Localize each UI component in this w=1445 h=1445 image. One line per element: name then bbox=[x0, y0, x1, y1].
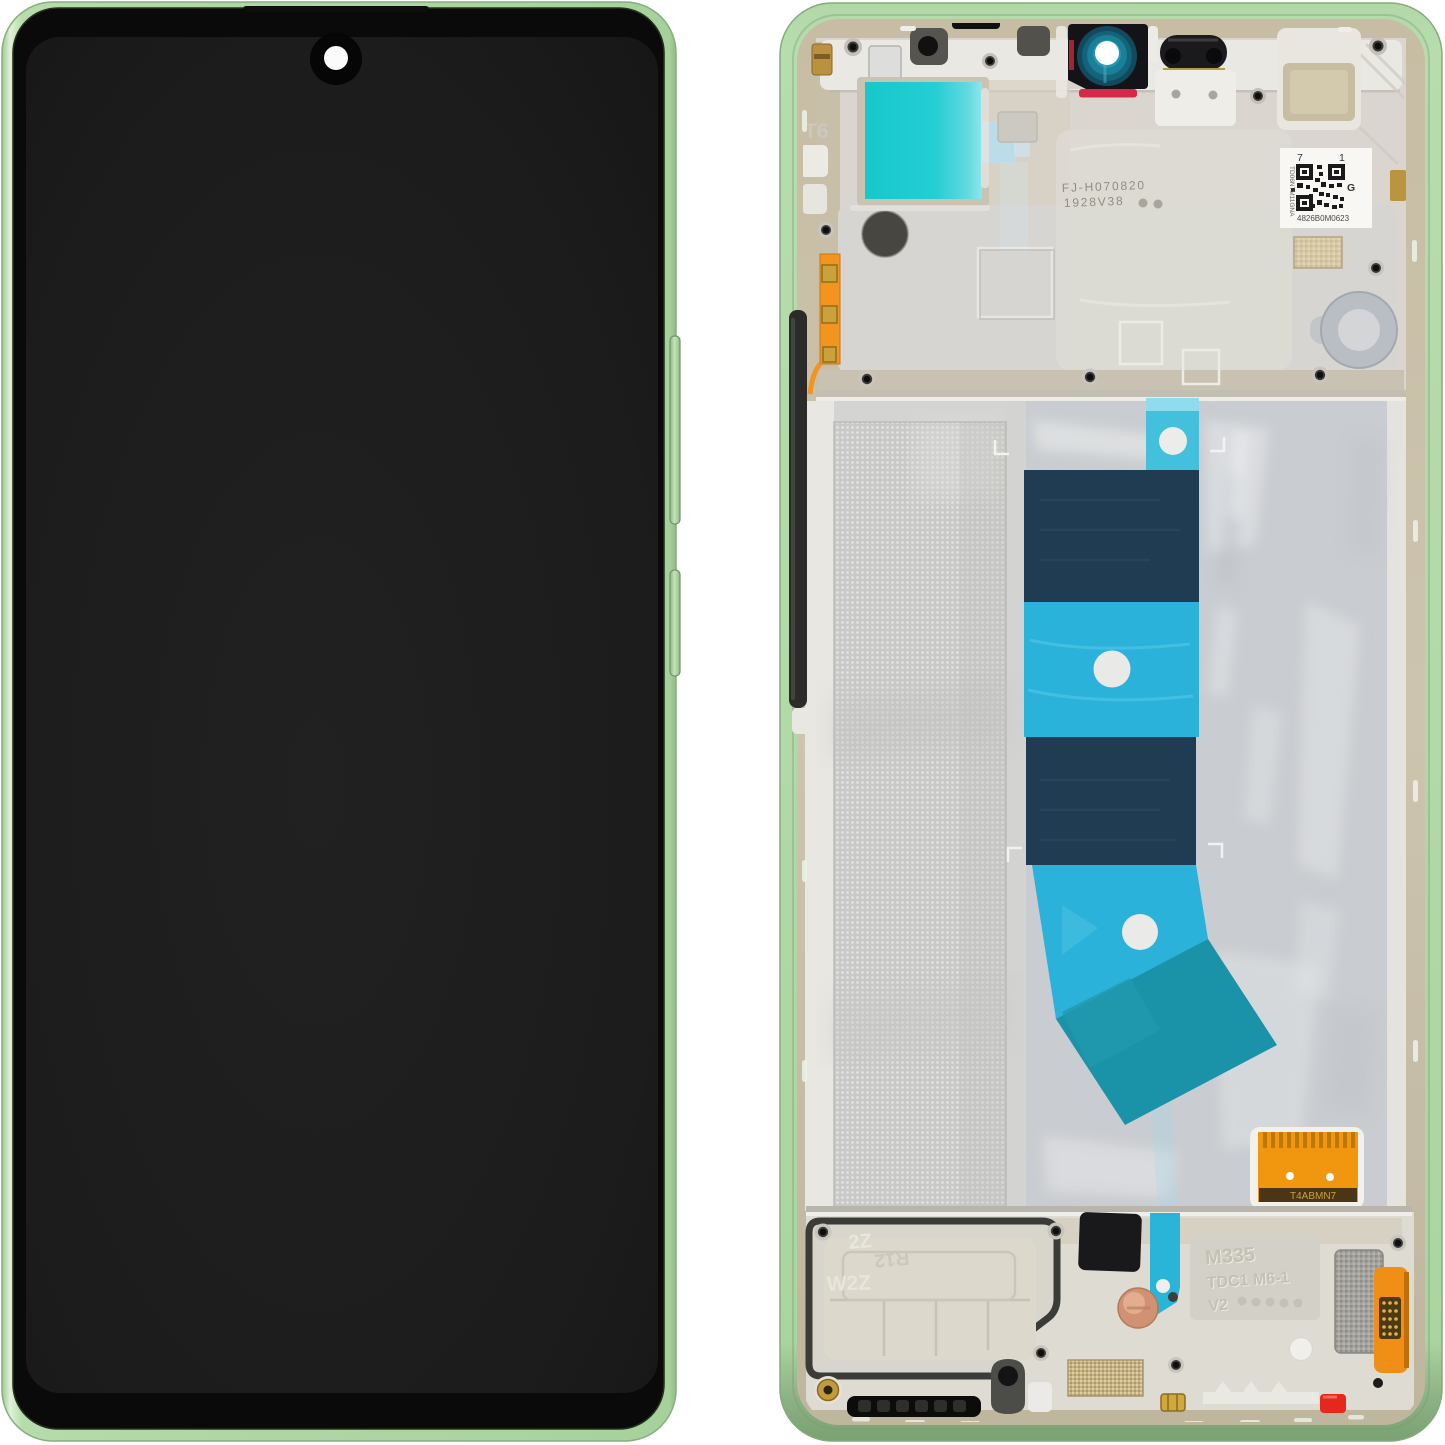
svg-text:T6: T6 bbox=[804, 120, 829, 143]
svg-text:7: 7 bbox=[1297, 152, 1303, 164]
svg-text:G: G bbox=[1347, 182, 1355, 194]
svg-text:FJ-H070820: FJ-H070820 bbox=[1062, 178, 1146, 195]
svg-text:1: 1 bbox=[1339, 152, 1345, 164]
svg-text:4826B0M0623: 4826B0M0623 bbox=[1297, 214, 1350, 223]
svg-text:2Z: 2Z bbox=[848, 1230, 873, 1254]
svg-text:M335: M335 bbox=[1204, 1244, 1255, 1269]
svg-text:TD06N7M11GNA: TD06N7M11GNA bbox=[1288, 166, 1295, 217]
svg-text:W2Z: W2Z bbox=[826, 1271, 871, 1296]
svg-text:T4ABMN7: T4ABMN7 bbox=[1290, 1191, 1337, 1202]
svg-text:V2: V2 bbox=[1208, 1297, 1229, 1315]
svg-text:R12: R12 bbox=[874, 1247, 911, 1271]
svg-text:1928V38: 1928V38 bbox=[1064, 194, 1125, 210]
